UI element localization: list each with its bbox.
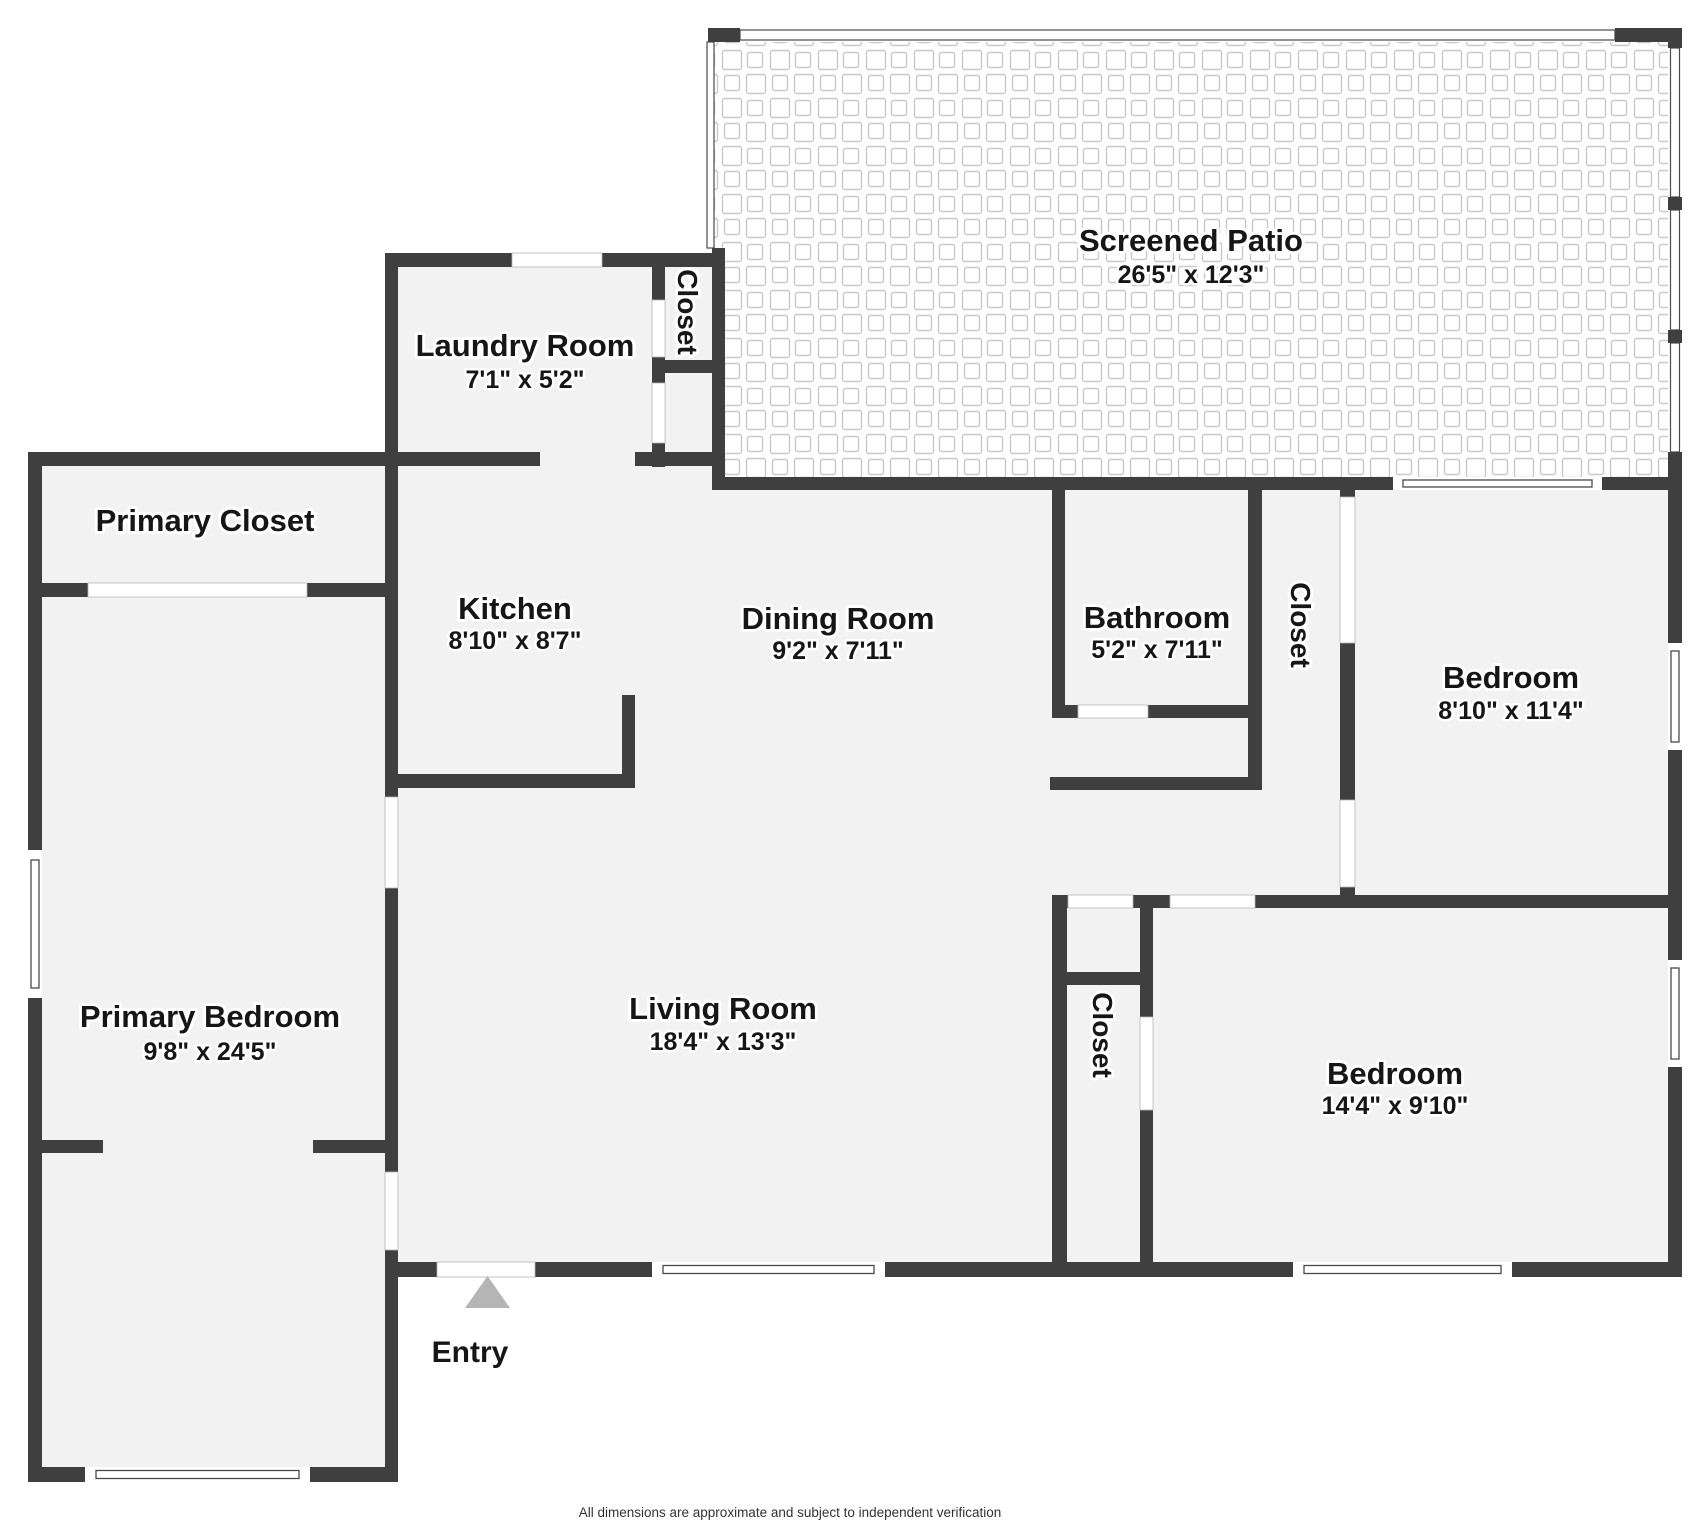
wall — [885, 1262, 1293, 1277]
wall — [1668, 452, 1682, 477]
floor-areas — [42, 42, 1668, 1467]
door-opening — [512, 253, 602, 267]
room-label-kitchen: Kitchen — [458, 591, 572, 626]
room-dims-dining: 9'2" x 7'11" — [772, 637, 904, 665]
screen-panel — [740, 30, 1615, 40]
wall — [1340, 490, 1355, 497]
entry-label: Entry — [432, 1336, 509, 1369]
room-dims-screened-patio: 26'5" x 12'3" — [1118, 261, 1265, 289]
window — [85, 1467, 310, 1482]
wall — [535, 1262, 652, 1277]
wall — [385, 1250, 398, 1482]
door-opening — [1340, 497, 1355, 643]
room-label-hall-closet: Closet — [1285, 582, 1316, 668]
room-dims-living: 18'4" x 13'3" — [650, 1028, 797, 1056]
wall — [1067, 972, 1140, 985]
floor-main-left — [398, 467, 712, 1262]
wall — [385, 452, 398, 797]
wall — [1148, 705, 1262, 718]
wall — [1050, 777, 1253, 790]
room-label-primary-closet: Primary Closet — [96, 503, 315, 538]
window — [652, 1262, 885, 1277]
screen-panel — [1671, 210, 1680, 330]
door-opening — [1068, 895, 1133, 908]
wall — [1668, 197, 1682, 210]
floor-left-wing — [42, 466, 385, 1467]
door-opening — [385, 797, 398, 888]
wall — [1512, 1262, 1682, 1277]
room-label-screened-patio: Screened Patio — [1079, 223, 1303, 258]
wall — [307, 583, 398, 597]
window — [1668, 643, 1682, 750]
wall — [1052, 490, 1065, 718]
window — [28, 850, 42, 998]
disclaimer-text: All dimensions are approximate and subje… — [579, 1505, 1002, 1520]
room-label-laundry: Laundry Room — [416, 328, 635, 363]
room-dims-primary-bedroom: 9'8" x 24'5" — [144, 1038, 277, 1066]
room-label-laundry-closet: Closet — [672, 269, 703, 355]
wall — [635, 452, 725, 466]
wall — [1668, 28, 1682, 48]
wall — [1133, 895, 1170, 908]
window — [1293, 1262, 1512, 1277]
room-label-primary-bedroom: Primary Bedroom — [80, 999, 340, 1034]
wall — [30, 1140, 103, 1153]
wall — [652, 267, 665, 300]
room-dims-bedroom-1: 8'10" x 11'4" — [1438, 697, 1583, 725]
wall — [1255, 895, 1682, 908]
room-label-bedroom-2: Bedroom — [1327, 1056, 1463, 1091]
screen-panel — [1671, 48, 1680, 197]
wall — [712, 477, 1393, 490]
wall — [1668, 477, 1682, 1277]
room-label-living: Living Room — [629, 991, 817, 1026]
wall — [1140, 1110, 1153, 1262]
door-opening — [652, 300, 665, 357]
wall — [1052, 895, 1067, 1262]
wall — [385, 888, 398, 1172]
room-label-dining: Dining Room — [742, 601, 935, 636]
entry-marker — [465, 1276, 510, 1308]
wall — [28, 452, 540, 466]
wall — [1340, 643, 1355, 800]
wall — [385, 253, 398, 467]
wall — [1668, 330, 1682, 343]
door-opening — [88, 583, 307, 597]
door-opening — [385, 1172, 398, 1250]
room-label-bathroom: Bathroom — [1084, 600, 1230, 635]
door-opening — [1078, 705, 1148, 718]
window — [1668, 960, 1682, 1067]
wall — [313, 1140, 398, 1153]
room-dims-bathroom: 5'2" x 7'11" — [1091, 636, 1223, 664]
wall — [1248, 490, 1262, 790]
screen-panel — [707, 42, 714, 248]
entry-door-opening — [437, 1262, 535, 1277]
room-label-bedroom-1: Bedroom — [1443, 660, 1579, 695]
room-dims-laundry: 7'1" x 5'2" — [465, 366, 584, 394]
wall — [385, 1262, 437, 1277]
room-dims-kitchen: 8'10" x 8'7" — [449, 627, 582, 655]
wall — [622, 695, 635, 788]
wall — [397, 774, 622, 788]
screen-panel — [1671, 343, 1680, 452]
room-label-bedroom-2-closet: Closet — [1087, 992, 1118, 1078]
wall — [1052, 705, 1078, 718]
patio-tiles — [714, 42, 1668, 477]
room-dims-bedroom-2: 14'4" x 9'10" — [1322, 1092, 1469, 1120]
door-opening — [1140, 1017, 1153, 1110]
wall — [708, 28, 740, 42]
door-opening — [1170, 895, 1255, 908]
floorplan-canvas: Screened Patio 26'5" x 12'3" Laundry Roo… — [0, 0, 1707, 1536]
window — [1393, 477, 1602, 490]
door-opening — [1340, 800, 1355, 887]
wall — [35, 583, 88, 597]
door-opening — [652, 383, 665, 443]
wall — [1140, 908, 1153, 1017]
